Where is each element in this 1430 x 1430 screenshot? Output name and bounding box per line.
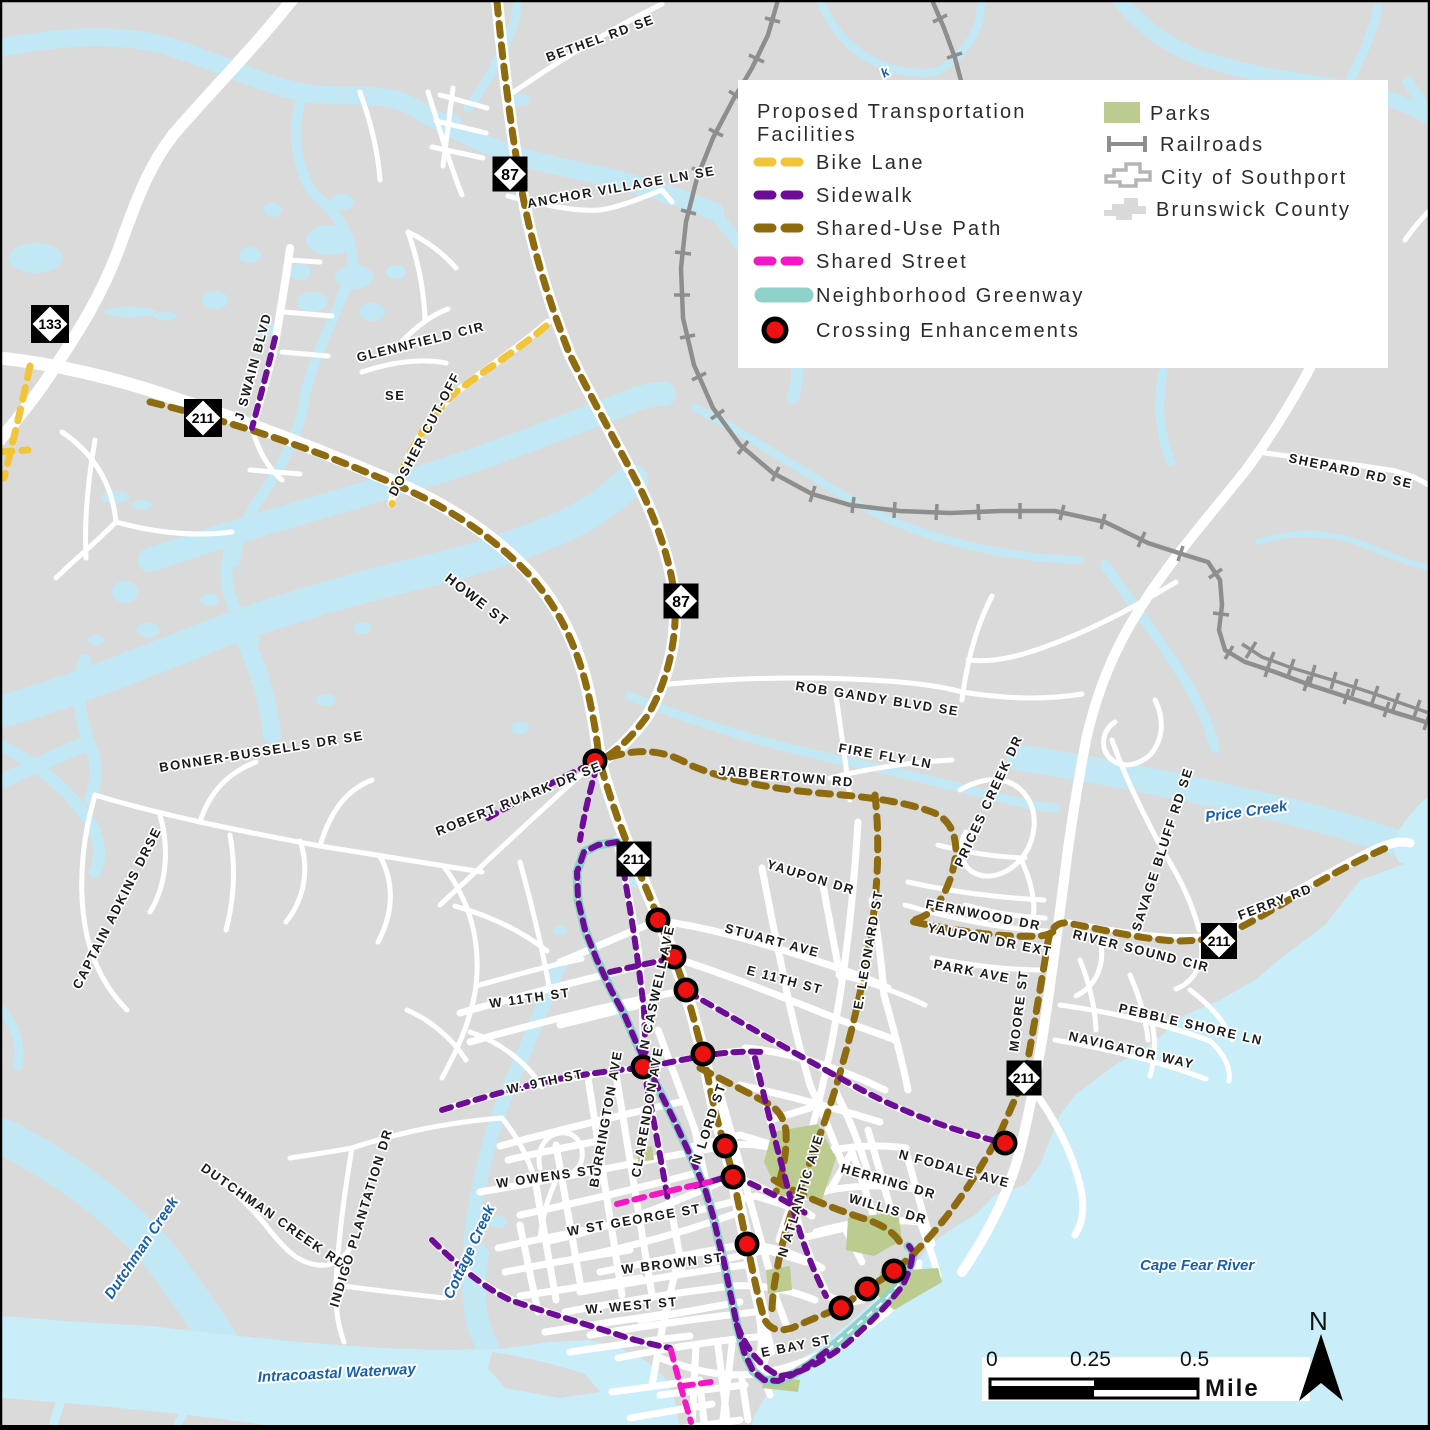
svg-text:N: N — [1309, 1306, 1328, 1336]
svg-text:SE: SE — [385, 388, 406, 403]
svg-text:211: 211 — [192, 410, 215, 426]
svg-text:87: 87 — [501, 167, 519, 184]
svg-text:0: 0 — [986, 1348, 998, 1371]
svg-text:Parks: Parks — [1150, 103, 1212, 125]
svg-text:0.25: 0.25 — [1070, 1348, 1111, 1371]
svg-text:Bike Lane: Bike Lane — [816, 152, 925, 174]
svg-text:Mile: Mile — [1205, 1375, 1260, 1402]
svg-text:Proposed Transportation: Proposed Transportation — [757, 101, 1027, 123]
svg-text:87: 87 — [672, 594, 690, 611]
svg-text:0.5: 0.5 — [1180, 1348, 1209, 1371]
svg-text:Facilities: Facilities — [757, 124, 857, 146]
svg-text:Crossing Enhancements: Crossing Enhancements — [816, 320, 1080, 342]
svg-text:Cape Fear River: Cape Fear River — [1140, 1257, 1255, 1274]
svg-text:Brunswick County: Brunswick County — [1156, 199, 1351, 221]
svg-text:Shared Street: Shared Street — [816, 251, 968, 273]
svg-text:Sidewalk: Sidewalk — [816, 185, 914, 207]
svg-text:133: 133 — [38, 316, 62, 332]
svg-text:211: 211 — [623, 851, 646, 867]
svg-text:211: 211 — [1013, 1070, 1036, 1086]
svg-text:211: 211 — [1208, 933, 1231, 949]
svg-text:Railroads: Railroads — [1160, 134, 1264, 156]
svg-text:Shared-Use Path: Shared-Use Path — [816, 218, 1002, 240]
svg-text:Neighborhood Greenway: Neighborhood Greenway — [816, 285, 1085, 307]
svg-text:City of Southport: City of Southport — [1161, 167, 1347, 189]
